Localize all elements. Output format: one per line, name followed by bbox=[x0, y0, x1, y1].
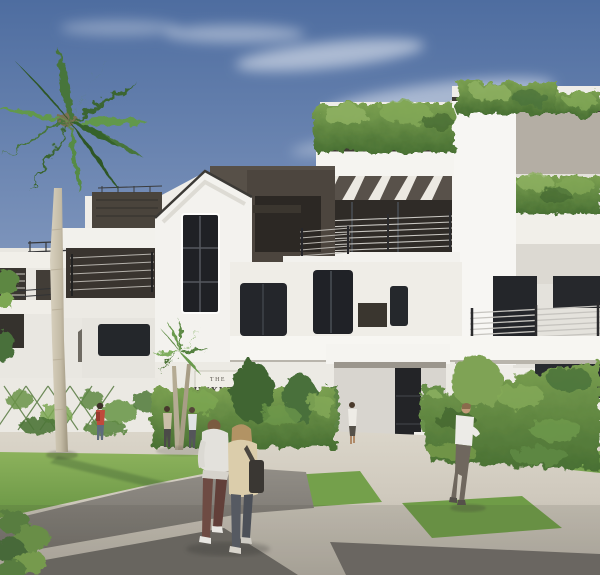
window bbox=[553, 276, 600, 308]
bronze-fascia bbox=[513, 112, 600, 174]
architectural-rendering: THE HUXLEY bbox=[0, 0, 600, 575]
left-recessed-balcony bbox=[66, 248, 158, 300]
planter-wall bbox=[513, 212, 600, 244]
street-shading bbox=[0, 505, 600, 575]
bronze-penthouse bbox=[92, 192, 162, 230]
rendering-canvas: THE HUXLEY bbox=[0, 0, 600, 575]
shoulder-bag bbox=[249, 460, 264, 493]
window bbox=[98, 324, 150, 356]
corner-window bbox=[313, 270, 353, 334]
window bbox=[390, 286, 408, 326]
terrace-planter-hedge bbox=[513, 173, 600, 214]
sign-line1: THE bbox=[210, 377, 226, 383]
wall-panel bbox=[358, 303, 387, 327]
recessed-terrace bbox=[315, 176, 452, 254]
entry-canopy bbox=[326, 344, 450, 364]
